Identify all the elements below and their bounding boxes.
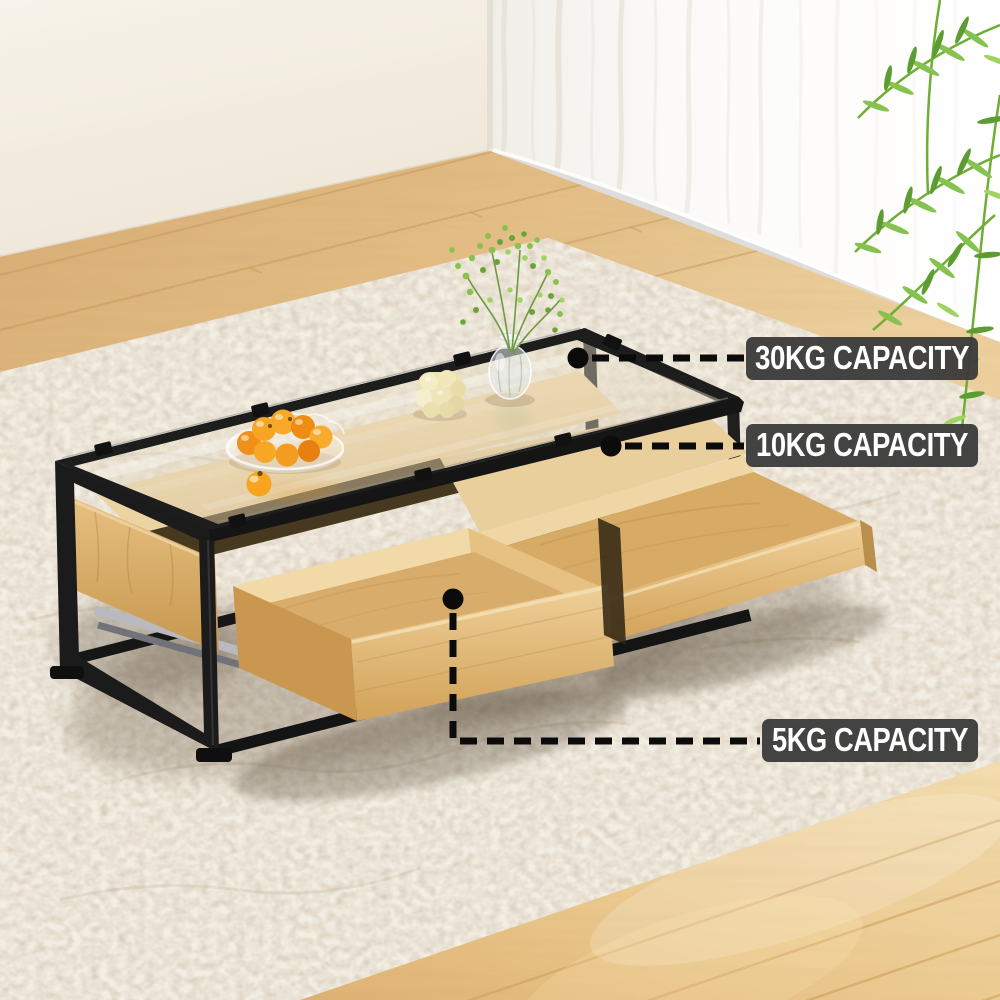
- annotation-label: 5KG CAPACITY: [772, 721, 968, 758]
- annotation-dot: [568, 348, 589, 369]
- annotation-dot: [443, 589, 464, 610]
- bubble-candle: [413, 370, 467, 421]
- leg-foot: [50, 666, 84, 679]
- annotation-dot: [601, 436, 622, 457]
- product-photo: 30KG CAPACITY 10KG CAPACITY 5KG CAPACITY: [0, 0, 1000, 1000]
- annotation-label: 10KG CAPACITY: [756, 426, 968, 463]
- leg-foot: [196, 748, 232, 762]
- annotation-label: 30KG CAPACITY: [755, 339, 969, 376]
